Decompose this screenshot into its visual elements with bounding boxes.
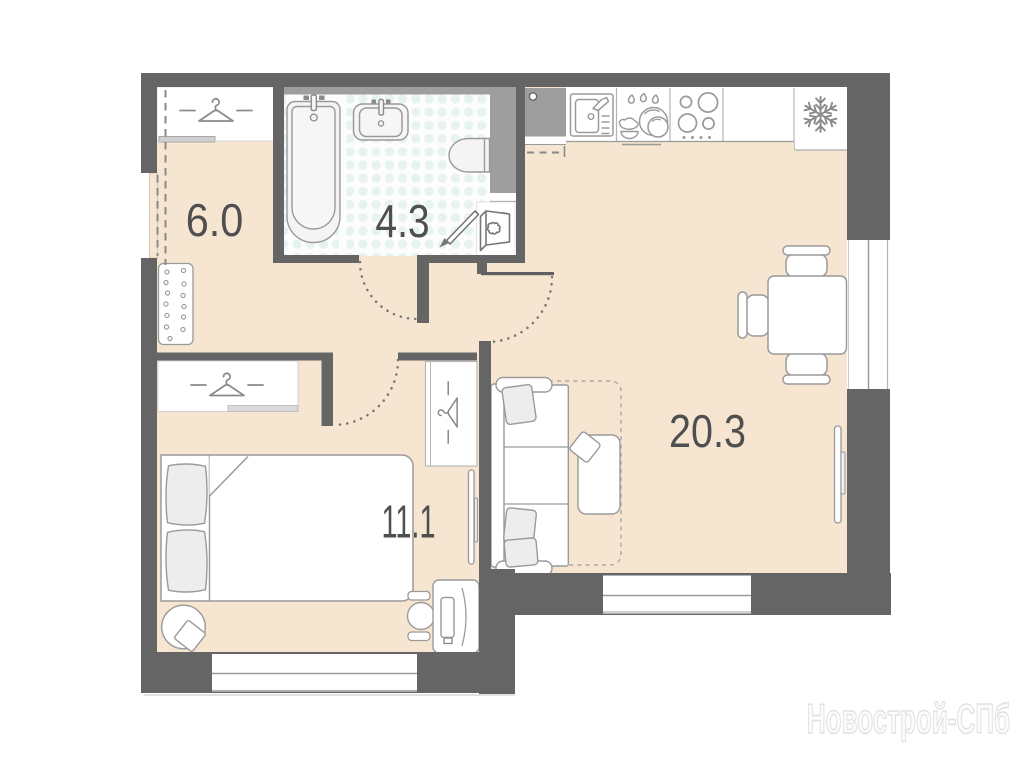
svg-text:11.1: 11.1 xyxy=(382,497,436,549)
svg-text:Новострой-СПб: Новострой-СПб xyxy=(807,696,1010,743)
svg-text:4.3: 4.3 xyxy=(375,196,429,248)
svg-text:20.3: 20.3 xyxy=(669,406,746,458)
svg-text:6.0: 6.0 xyxy=(186,195,244,247)
